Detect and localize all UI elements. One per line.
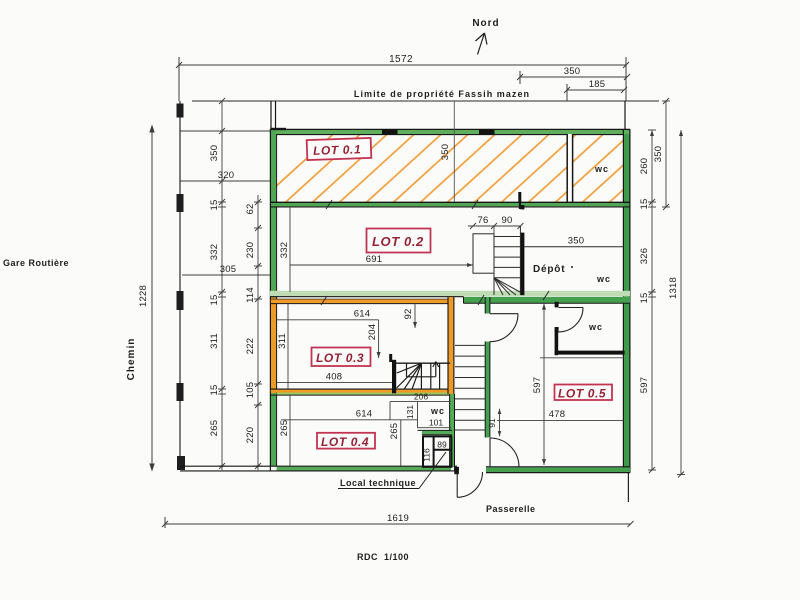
svg-text:LOT 0.1: LOT 0.1 xyxy=(313,142,362,158)
svg-text:1318: 1318 xyxy=(668,277,679,299)
svg-text:350: 350 xyxy=(568,236,584,247)
svg-text:320: 320 xyxy=(218,170,234,181)
svg-text:185: 185 xyxy=(589,79,605,90)
svg-text:350: 350 xyxy=(209,145,220,161)
svg-text:wc: wc xyxy=(596,274,611,284)
svg-text:90: 90 xyxy=(502,215,513,226)
svg-text:76: 76 xyxy=(478,215,489,226)
svg-text:204: 204 xyxy=(367,324,378,340)
svg-text:15: 15 xyxy=(209,385,220,396)
svg-text:15: 15 xyxy=(209,200,220,211)
svg-text:691: 691 xyxy=(366,254,382,265)
svg-text:326: 326 xyxy=(639,248,650,264)
svg-text:62: 62 xyxy=(245,204,256,215)
svg-text:1572: 1572 xyxy=(389,54,413,65)
svg-text:1619: 1619 xyxy=(387,513,409,524)
svg-text:222: 222 xyxy=(245,338,256,354)
svg-text:15: 15 xyxy=(209,295,220,306)
svg-text:1228: 1228 xyxy=(138,285,149,307)
svg-text:350: 350 xyxy=(653,146,664,162)
svg-text:15: 15 xyxy=(639,199,650,210)
svg-text:LOT 0.2: LOT 0.2 xyxy=(372,234,424,249)
svg-text:332: 332 xyxy=(209,244,220,260)
svg-text:LOT 0.4: LOT 0.4 xyxy=(321,435,369,449)
svg-text:wc: wc xyxy=(594,164,609,174)
svg-text:114: 114 xyxy=(245,287,256,303)
svg-text:Local technique: Local technique xyxy=(340,478,416,488)
svg-text:265: 265 xyxy=(209,420,220,436)
svg-text:LOT 0.5: LOT 0.5 xyxy=(558,387,606,401)
svg-text:597: 597 xyxy=(639,377,650,393)
svg-text:614: 614 xyxy=(354,309,370,320)
svg-text:101: 101 xyxy=(429,418,443,428)
svg-text:Nord: Nord xyxy=(472,18,499,29)
svg-text:614: 614 xyxy=(356,409,372,420)
svg-text:408: 408 xyxy=(326,372,342,383)
svg-text:Passerelle: Passerelle xyxy=(486,504,536,514)
svg-text:206: 206 xyxy=(414,392,428,402)
svg-text:wc: wc xyxy=(588,322,603,332)
svg-text:350: 350 xyxy=(564,66,580,77)
svg-text:265: 265 xyxy=(279,420,290,436)
svg-text:Dépôt: Dépôt xyxy=(533,264,565,275)
svg-text:105: 105 xyxy=(245,382,256,398)
svg-text:Gare Routière: Gare Routière xyxy=(3,258,69,268)
svg-text:89: 89 xyxy=(437,440,447,450)
svg-text:305: 305 xyxy=(220,264,236,275)
svg-text:Limite de propriété Fassih maz: Limite de propriété Fassih mazen xyxy=(354,89,530,99)
svg-text:220: 220 xyxy=(245,427,256,443)
svg-text:91: 91 xyxy=(487,418,497,428)
svg-text:311: 311 xyxy=(277,333,288,349)
svg-text:wc: wc xyxy=(430,406,445,416)
svg-text:332: 332 xyxy=(279,242,290,258)
svg-text:131: 131 xyxy=(405,405,415,419)
svg-text:Chemin: Chemin xyxy=(126,338,137,381)
svg-text:265: 265 xyxy=(389,423,400,439)
svg-text:478: 478 xyxy=(549,409,565,420)
svg-text:LOT 0.3: LOT 0.3 xyxy=(316,351,364,365)
svg-text:15: 15 xyxy=(639,293,650,304)
svg-text:230: 230 xyxy=(245,242,256,258)
svg-text:350: 350 xyxy=(440,144,451,160)
svg-text:RDC 1/100: RDC 1/100 xyxy=(357,552,409,562)
svg-text:597: 597 xyxy=(532,377,543,393)
svg-text:260: 260 xyxy=(639,158,650,174)
svg-text:116: 116 xyxy=(422,448,432,462)
svg-text:92: 92 xyxy=(403,309,414,320)
svg-text:311: 311 xyxy=(209,333,220,349)
